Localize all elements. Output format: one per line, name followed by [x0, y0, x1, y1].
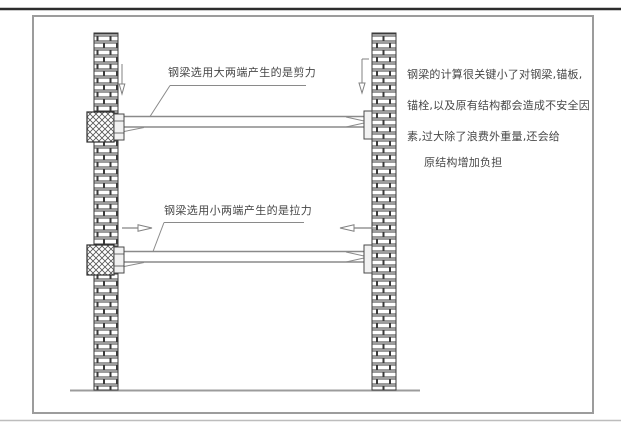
left-brick-wall [94, 33, 118, 390]
note-line-2: 锚栓,以及原有结构都会造成不安全因 [407, 99, 590, 113]
lower-anchor-block [87, 245, 114, 275]
lower-beam-caption: 钢梁选用小两端产生的是拉力 [164, 204, 312, 218]
note-line-3: 素,过大除了浪费外重量,还会给 [407, 130, 560, 144]
upper-steel-beam [124, 117, 364, 132]
lower-left-end-plate [114, 247, 124, 273]
shear-down-arrow-right [359, 59, 369, 93]
lower-steel-beam [124, 252, 364, 267]
lower-right-end-plate [364, 245, 372, 273]
tension-arrow-left [340, 225, 376, 231]
upper-beam-caption: 钢梁选用大两端产生的是剪力 [168, 66, 316, 80]
figure-canvas: 钢梁选用大两端产生的是剪力 钢梁选用小两端产生的是拉力 钢梁的计算很关键小了对钢… [0, 0, 621, 434]
shear-down-arrow-left [119, 64, 125, 94]
lower-caption-leader-line [153, 223, 304, 252]
upper-anchor-block [87, 112, 114, 142]
note-line-4: 原结构增加负担 [424, 156, 502, 170]
tension-arrow-right [122, 225, 152, 231]
upper-caption-leader-line [150, 86, 306, 117]
upper-left-end-plate [114, 114, 124, 140]
upper-right-end-plate [364, 111, 372, 139]
note-line-1: 钢梁的计算很关键小了对钢梁,锚板, [407, 68, 582, 82]
right-brick-wall [372, 33, 396, 390]
